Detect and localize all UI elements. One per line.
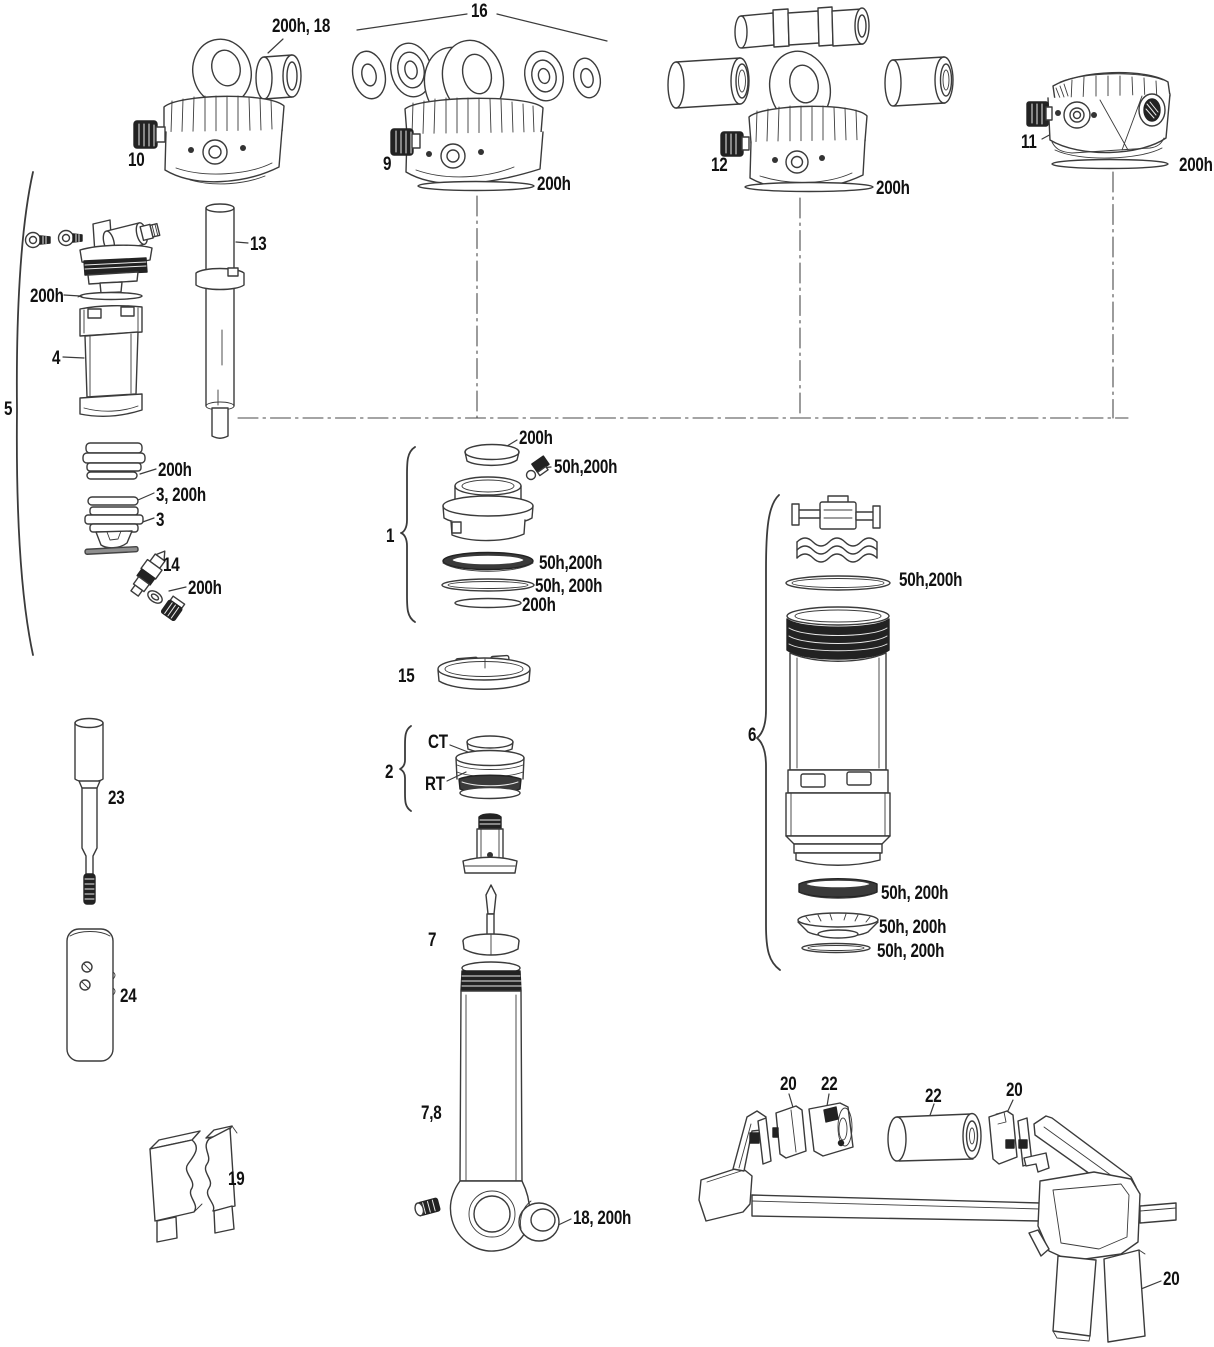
label-part-24: 24 xyxy=(120,987,136,1006)
label-group-6: 6 xyxy=(748,726,756,745)
label-piston-ring-3: 3, 200h xyxy=(156,486,206,505)
label-seal-6c: 50h, 200h xyxy=(877,942,944,961)
label-tool-22-right: 22 xyxy=(925,1087,941,1106)
label-glide-ring-1: 50h,200h xyxy=(539,554,602,573)
group-brackets xyxy=(17,172,780,970)
label-seal-head-ring: 200h xyxy=(158,461,192,480)
label-oring-14: 200h xyxy=(188,579,222,598)
part-24-drawing xyxy=(67,929,115,1061)
part-6-group-drawing xyxy=(786,496,890,953)
label-part-13: 13 xyxy=(250,235,266,254)
label-part-9: 9 xyxy=(383,155,391,174)
label-ring-12: 200h xyxy=(876,179,910,198)
diagram-artwork xyxy=(0,0,1214,1347)
label-oring-1: 50h, 200h xyxy=(535,577,602,596)
label-ring-11: 200h xyxy=(1179,156,1213,175)
label-air-top-seal: 200h xyxy=(30,287,64,306)
part-19-drawing xyxy=(150,1126,237,1242)
label-tool-20-left: 20 xyxy=(780,1075,796,1094)
label-valve-1: 50h,200h xyxy=(554,458,617,477)
part-11-drawing xyxy=(1027,73,1170,169)
label-part-23: 23 xyxy=(108,789,124,808)
label-tool-20-right: 20 xyxy=(1006,1081,1022,1100)
part-7-drawing xyxy=(463,814,519,955)
label-oring-6: 50h,200h xyxy=(899,571,962,590)
label-part-11: 11 xyxy=(1021,133,1037,152)
label-part-7: 7 xyxy=(428,931,436,950)
label-ring-9: 200h xyxy=(537,175,571,194)
label-tool-22-left: 22 xyxy=(821,1075,837,1094)
label-ct: CT xyxy=(428,733,448,752)
label-tool-20-handle: 20 xyxy=(1163,1270,1179,1289)
label-group-16: 16 xyxy=(471,2,487,21)
part-10-drawing xyxy=(134,33,301,184)
bracket-2 xyxy=(400,726,411,811)
label-cap-1: 200h xyxy=(519,429,553,448)
part-15-drawing xyxy=(438,655,530,689)
label-part-4: 4 xyxy=(52,349,60,368)
label-bushing-18: 200h, 18 xyxy=(272,17,330,36)
label-group-2: 2 xyxy=(385,763,393,782)
bracket-1 xyxy=(401,447,415,622)
label-seal-6a: 50h, 200h xyxy=(881,884,948,903)
label-ring-1: 200h xyxy=(522,596,556,615)
part-4-air-can-drawing xyxy=(80,306,142,417)
label-rt: RT xyxy=(425,775,445,794)
part-2-group-drawing xyxy=(456,736,524,799)
label-part-7-8: 7,8 xyxy=(421,1104,441,1123)
exploded-parts-diagram: 200h, 18 16 10 9 200h 12 200h 11 200h 13… xyxy=(0,0,1214,1347)
label-seal-6b: 50h, 200h xyxy=(879,918,946,937)
label-group-1: 1 xyxy=(386,527,394,546)
label-part-10: 10 xyxy=(128,151,144,170)
label-part-3: 3 xyxy=(156,511,164,530)
part-23-drawing xyxy=(75,719,103,905)
label-bushing-7: 18, 200h xyxy=(573,1209,631,1228)
label-part-19: 19 xyxy=(228,1170,244,1189)
clamp-tool-drawing xyxy=(699,1103,1176,1342)
label-group-5: 5 xyxy=(4,400,12,419)
bracket-6 xyxy=(757,495,780,970)
label-part-12: 12 xyxy=(711,156,727,175)
label-part-15: 15 xyxy=(398,667,414,686)
part-13-drawing xyxy=(196,204,244,438)
centerline-dashes xyxy=(238,172,1128,418)
label-part-14: 14 xyxy=(163,556,179,575)
